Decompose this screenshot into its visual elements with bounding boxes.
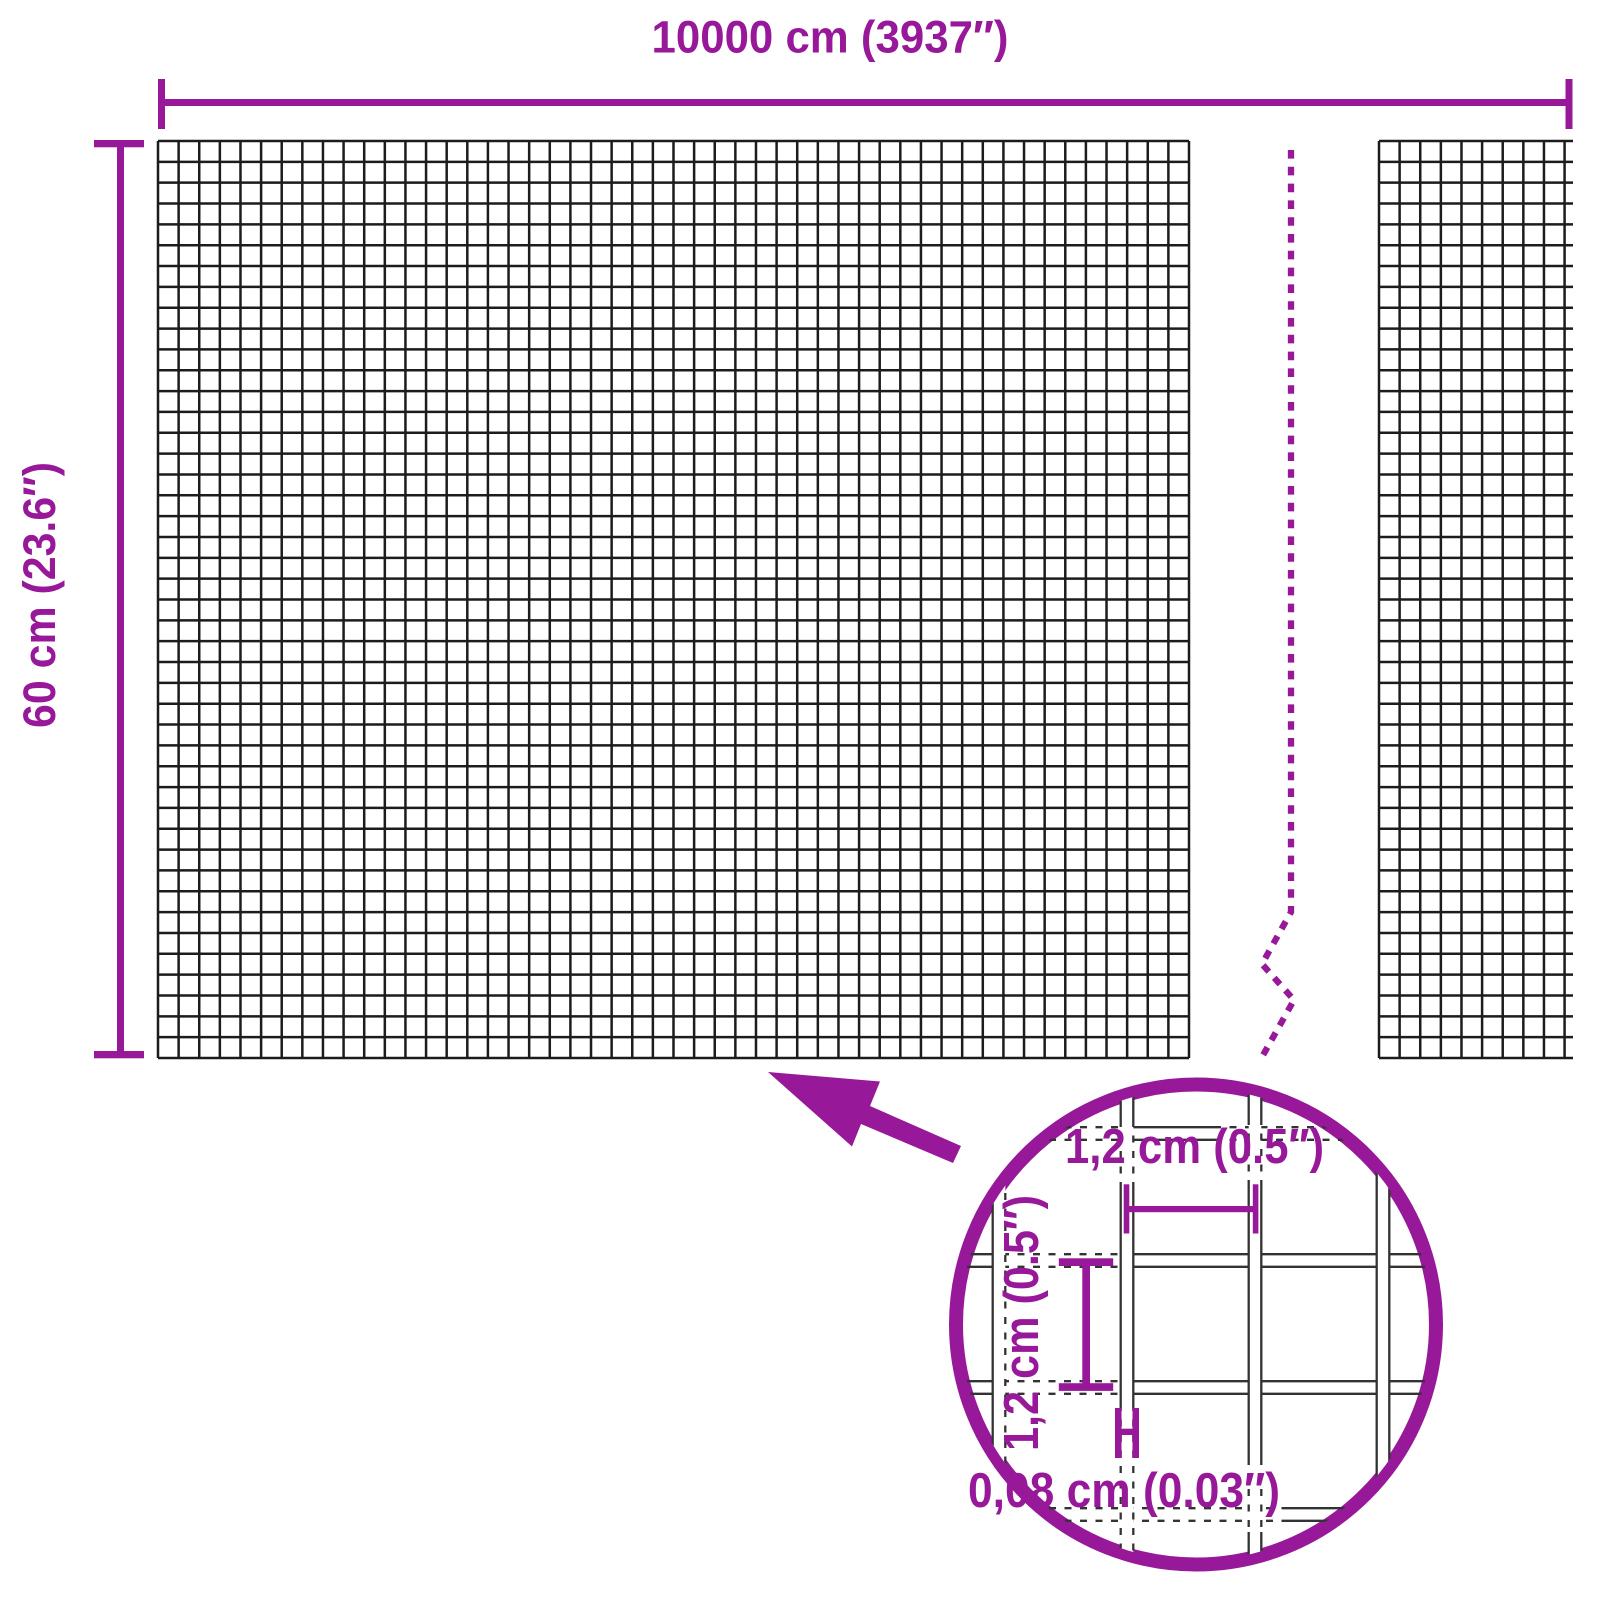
svg-text:0,08 cm (0.03″): 0,08 cm (0.03″) [968,1463,1280,1518]
svg-text:1,2 cm (0.5″): 1,2 cm (0.5″) [1065,1119,1324,1174]
svg-text:60 cm (23.6″): 60 cm (23.6″) [14,462,65,728]
svg-text:10000 cm (3937″): 10000 cm (3937″) [652,12,1009,63]
svg-text:1,2 cm (0.5″): 1,2 cm (0.5″) [994,1195,1049,1451]
